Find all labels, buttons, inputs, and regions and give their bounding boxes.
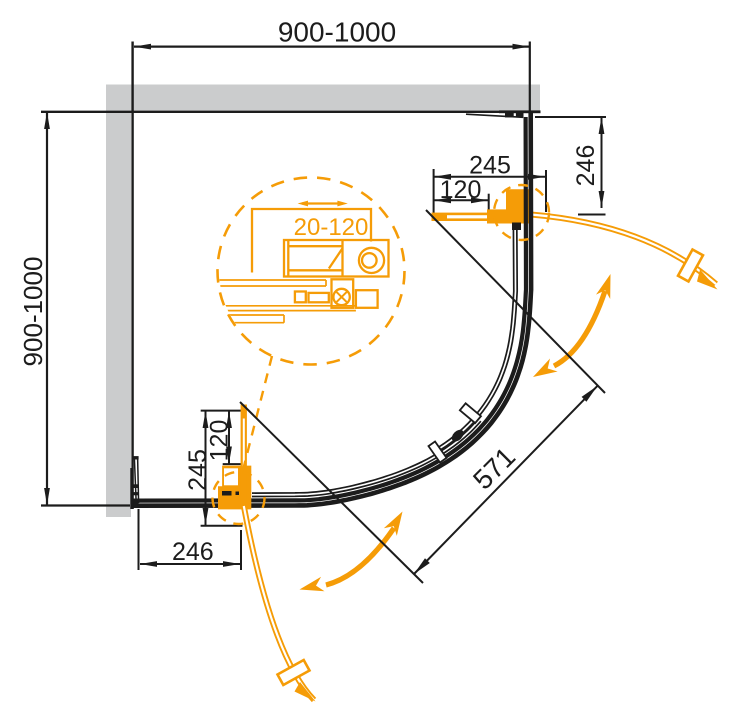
svg-text:246: 246 [572,145,600,187]
svg-text:900-1000: 900-1000 [278,17,396,48]
svg-text:120: 120 [206,420,234,462]
svg-text:571: 571 [467,441,521,495]
svg-text:246: 246 [172,538,214,566]
svg-text:120: 120 [440,176,482,204]
svg-text:900-1000: 900-1000 [18,257,48,367]
svg-text:20-120: 20-120 [294,214,369,241]
